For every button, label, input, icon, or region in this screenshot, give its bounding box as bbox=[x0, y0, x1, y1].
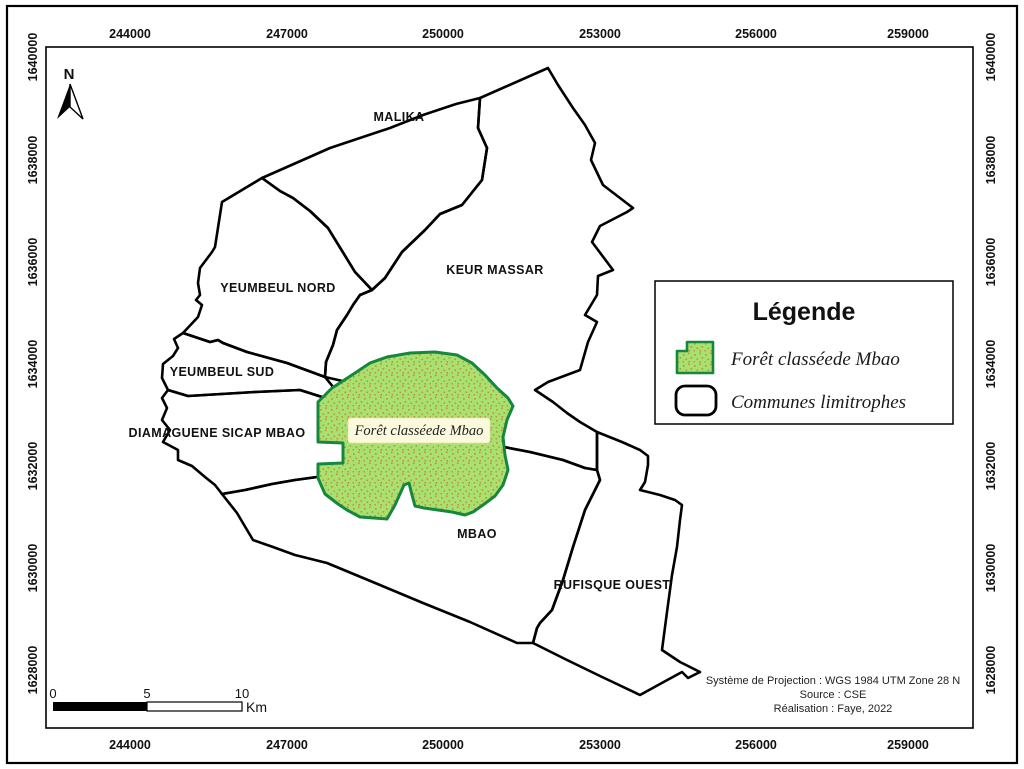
label-diamaguene: DIAMAGUENE SICAP MBAO bbox=[129, 426, 306, 440]
x-tick-top-256000: 256000 bbox=[735, 27, 777, 41]
x-tick-bottom-259000: 259000 bbox=[887, 738, 929, 752]
y-tick-left-1636000: 1636000 bbox=[26, 238, 40, 287]
legend-communes-label: Communes limitrophes bbox=[731, 392, 906, 413]
x-axis-top: 244000 247000 250000 253000 256000 25900… bbox=[109, 27, 929, 41]
y-tick-right-1636000: 1636000 bbox=[984, 238, 998, 287]
label-yeumbeul-nord: YEUMBEUL NORD bbox=[220, 281, 335, 295]
y-tick-right-1638000: 1638000 bbox=[984, 136, 998, 185]
legend-communes-swatch bbox=[676, 386, 716, 415]
map-canvas: Forêt classéede Mbao MALIKA KEUR MASSAR … bbox=[0, 0, 1024, 769]
x-tick-top-247000: 247000 bbox=[266, 27, 308, 41]
y-tick-left-1630000: 1630000 bbox=[26, 544, 40, 593]
x-tick-top-253000: 253000 bbox=[579, 27, 621, 41]
x-tick-top-250000: 250000 bbox=[422, 27, 464, 41]
y-tick-right-1640000: 1640000 bbox=[984, 33, 998, 82]
y-axis-right: 1640000 1638000 1636000 1634000 1632000 … bbox=[984, 33, 998, 695]
forest-label: Forêt classéede Mbao bbox=[354, 423, 484, 439]
y-axis-left: 1640000 1638000 1636000 1634000 1632000 … bbox=[26, 33, 40, 695]
north-label: N bbox=[64, 66, 75, 83]
scalebar-white-segment bbox=[147, 702, 242, 711]
y-tick-left-1632000: 1632000 bbox=[26, 442, 40, 491]
scalebar-5: 5 bbox=[143, 686, 150, 701]
x-tick-bottom-253000: 253000 bbox=[579, 738, 621, 752]
y-tick-left-1640000: 1640000 bbox=[26, 33, 40, 82]
legend: Légende Forêt classéede Mbao Communes li… bbox=[655, 281, 953, 424]
map-page: Forêt classéede Mbao MALIKA KEUR MASSAR … bbox=[0, 0, 1024, 769]
y-tick-left-1634000: 1634000 bbox=[26, 340, 40, 389]
label-keur-massar: KEUR MASSAR bbox=[446, 263, 543, 277]
y-tick-left-1628000: 1628000 bbox=[26, 646, 40, 695]
legend-forest-label: Forêt classéede Mbao bbox=[730, 349, 900, 370]
label-yeumbeul-sud: YEUMBEUL SUD bbox=[170, 365, 275, 379]
legend-title: Légende bbox=[753, 298, 856, 326]
scalebar-unit: Km bbox=[246, 699, 267, 715]
label-malika: MALIKA bbox=[373, 110, 424, 124]
x-tick-bottom-256000: 256000 bbox=[735, 738, 777, 752]
scalebar-black-segment bbox=[53, 702, 147, 711]
credits-source: Source : CSE bbox=[800, 689, 867, 701]
credits-author: Réalisation : Faye, 2022 bbox=[774, 703, 893, 715]
x-tick-bottom-250000: 250000 bbox=[422, 738, 464, 752]
x-axis-bottom: 244000 247000 250000 253000 256000 25900… bbox=[109, 738, 929, 752]
y-tick-right-1632000: 1632000 bbox=[984, 442, 998, 491]
credits-projection: Système de Projection : WGS 1984 UTM Zon… bbox=[706, 675, 960, 687]
y-tick-right-1634000: 1634000 bbox=[984, 340, 998, 389]
x-tick-top-244000: 244000 bbox=[109, 27, 151, 41]
x-tick-top-259000: 259000 bbox=[887, 27, 929, 41]
x-tick-bottom-244000: 244000 bbox=[109, 738, 151, 752]
y-tick-right-1628000: 1628000 bbox=[984, 646, 998, 695]
label-mbao: MBAO bbox=[457, 527, 497, 541]
label-rufisque-ouest: RUFISQUE OUEST bbox=[554, 578, 671, 592]
x-tick-bottom-247000: 247000 bbox=[266, 738, 308, 752]
y-tick-left-1638000: 1638000 bbox=[26, 136, 40, 185]
scalebar-0: 0 bbox=[49, 686, 56, 701]
forest-label-callout: Forêt classéede Mbao bbox=[348, 418, 490, 443]
y-tick-right-1630000: 1630000 bbox=[984, 544, 998, 593]
